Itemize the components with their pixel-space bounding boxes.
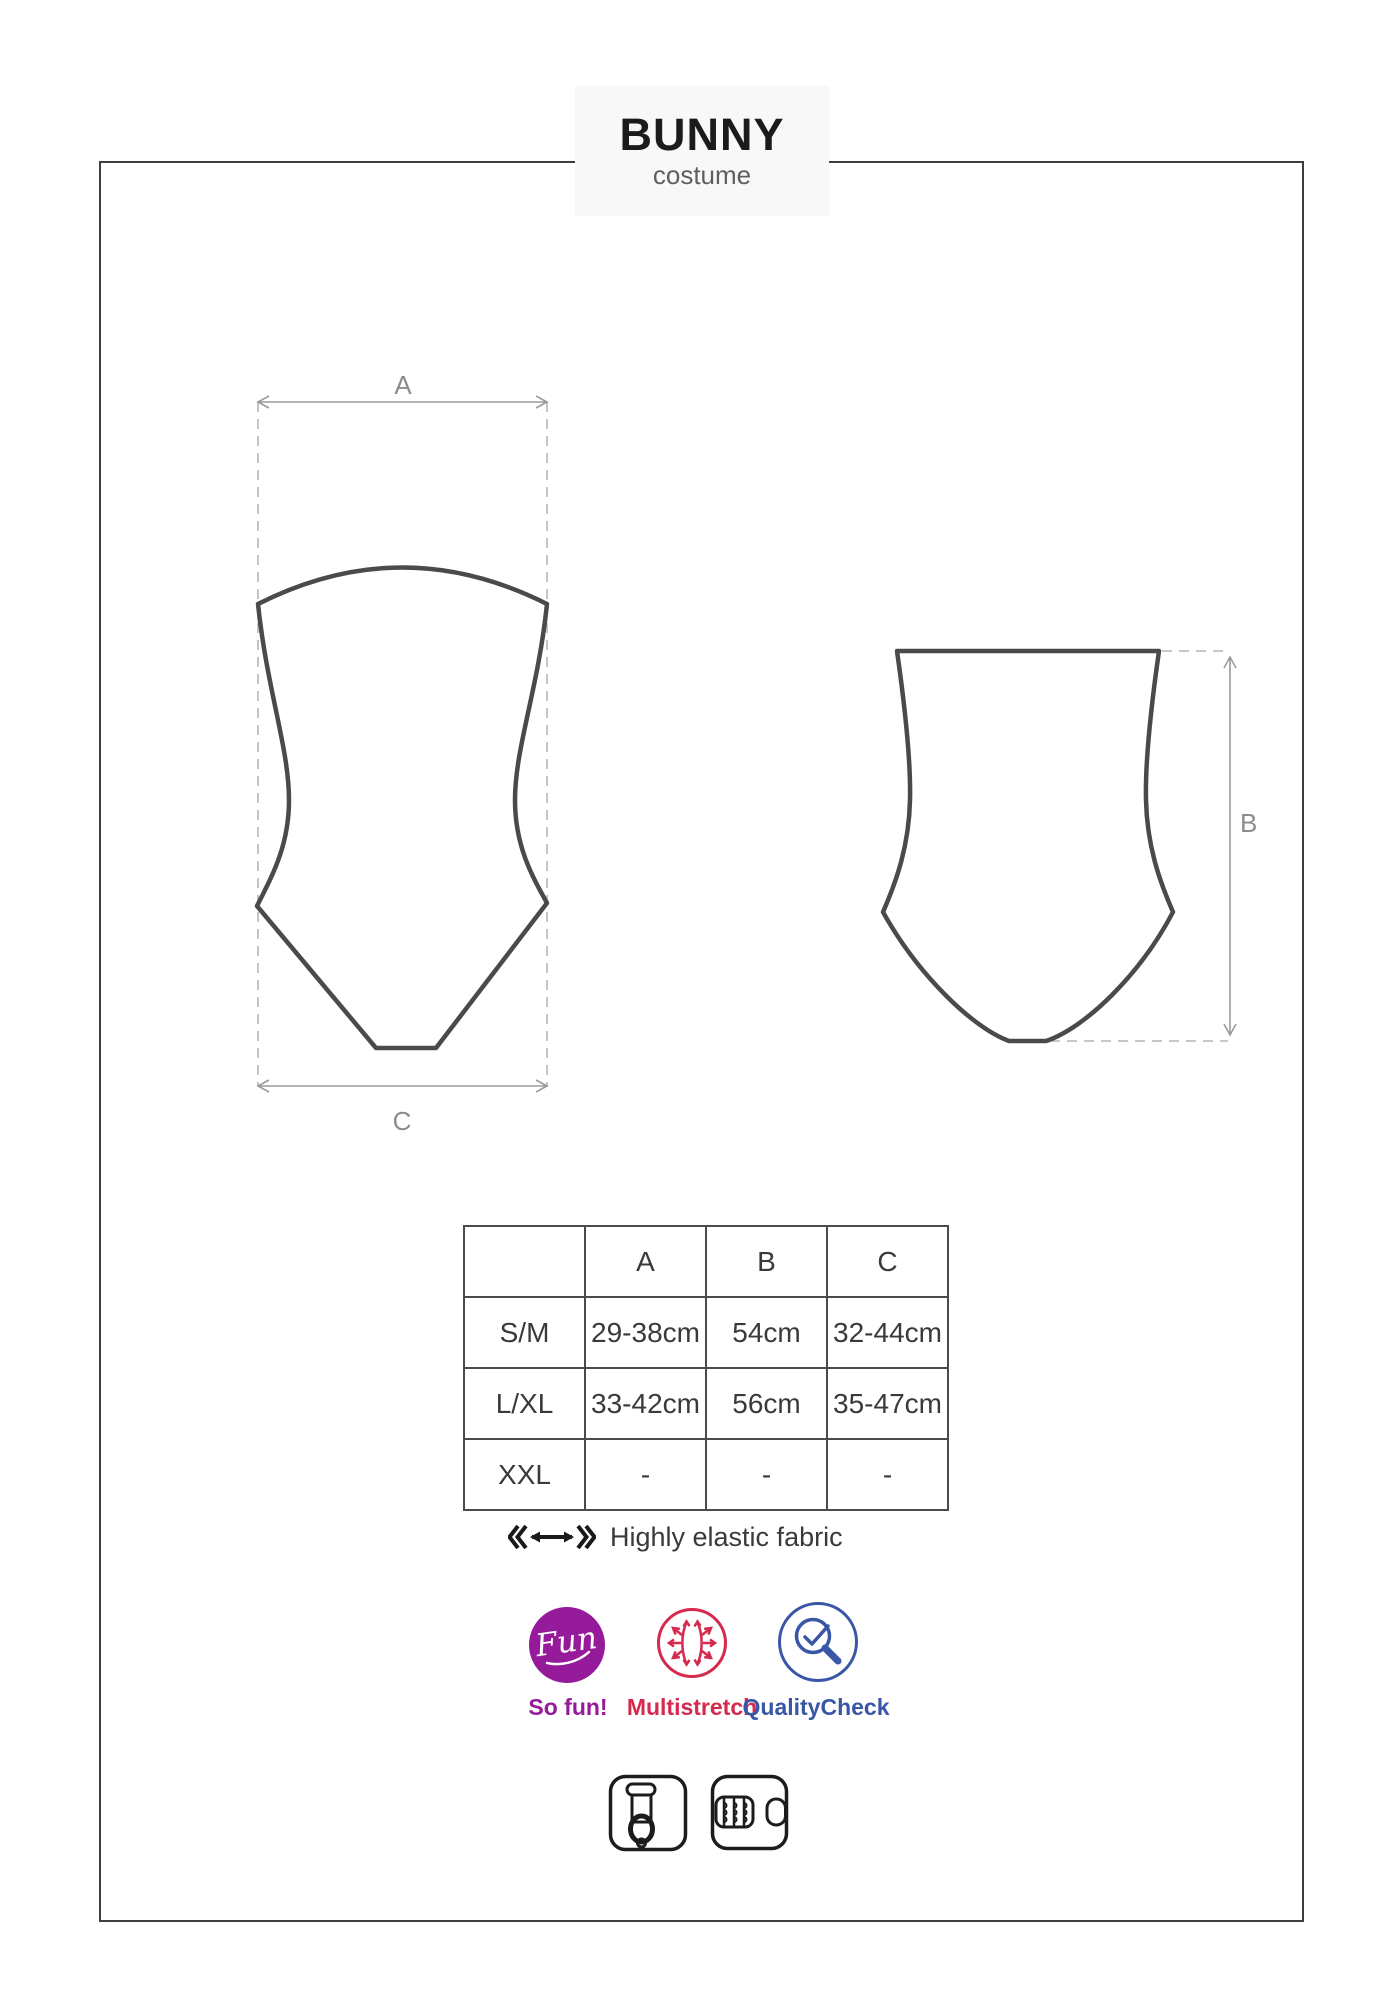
fabric-note: Highly elastic fabric <box>508 1518 843 1556</box>
size-table-col-b: B <box>706 1226 827 1297</box>
size-label: XXL <box>464 1439 585 1510</box>
dimension-a-label: A <box>394 370 412 400</box>
dimension-guides <box>1050 651 1228 1041</box>
multistretch-icon <box>655 1606 729 1680</box>
fun-badge-art: Fun <box>529 1607 605 1683</box>
size-table-row-sm: S/M 29-38cm 54cm 32-44cm <box>464 1297 948 1368</box>
dimension-c-arrow <box>258 1080 547 1092</box>
front-garment-outline <box>257 568 547 1049</box>
value-c: - <box>827 1439 948 1510</box>
elastic-stretch-arrow-icon <box>508 1524 596 1550</box>
size-table-row-xxl: XXL - - - <box>464 1439 948 1510</box>
dimension-c-label: C <box>393 1106 412 1136</box>
size-table-corner-cell <box>464 1226 585 1297</box>
product-title: BUNNY <box>619 111 784 158</box>
size-table: A B C S/M 29-38cm 54cm 32-44cm L/XL 33-4… <box>463 1225 949 1511</box>
value-a: 33-42cm <box>585 1368 706 1439</box>
size-table-row-lxl: L/XL 33-42cm 56cm 35-47cm <box>464 1368 948 1439</box>
size-table-col-a: A <box>585 1226 706 1297</box>
size-chart-page: BUNNY costume A C <box>0 0 1395 2000</box>
value-b: 56cm <box>706 1368 827 1439</box>
size-table-col-c: C <box>827 1226 948 1297</box>
dimension-b-arrow <box>1224 657 1236 1035</box>
quality-check-icon <box>776 1600 860 1684</box>
front-view-diagram: A C <box>180 360 620 1150</box>
fun-badge-text: Fun <box>532 1620 599 1664</box>
dimension-guides <box>258 402 547 1086</box>
dimension-b-label: B <box>1240 808 1257 838</box>
value-c: 35-47cm <box>827 1368 948 1439</box>
value-c: 32-44cm <box>827 1297 948 1368</box>
garter-clip-icon <box>608 1774 688 1853</box>
back-garment-outline <box>883 651 1173 1041</box>
product-subtitle: costume <box>653 160 751 191</box>
hook-eye-closure-icon <box>710 1774 789 1851</box>
value-b: 54cm <box>706 1297 827 1368</box>
size-label: S/M <box>464 1297 585 1368</box>
value-a: - <box>585 1439 706 1510</box>
value-a: 29-38cm <box>585 1297 706 1368</box>
back-view-diagram: B <box>860 600 1280 1100</box>
size-label: L/XL <box>464 1368 585 1439</box>
value-b: - <box>706 1439 827 1510</box>
quality-check-label: QualityCheck <box>741 1694 891 1721</box>
fun-badge-icon: Fun <box>529 1607 605 1683</box>
fabric-note-label: Highly elastic fabric <box>610 1522 843 1553</box>
title-box: BUNNY costume <box>575 86 829 216</box>
size-table-header-row: A B C <box>464 1226 948 1297</box>
